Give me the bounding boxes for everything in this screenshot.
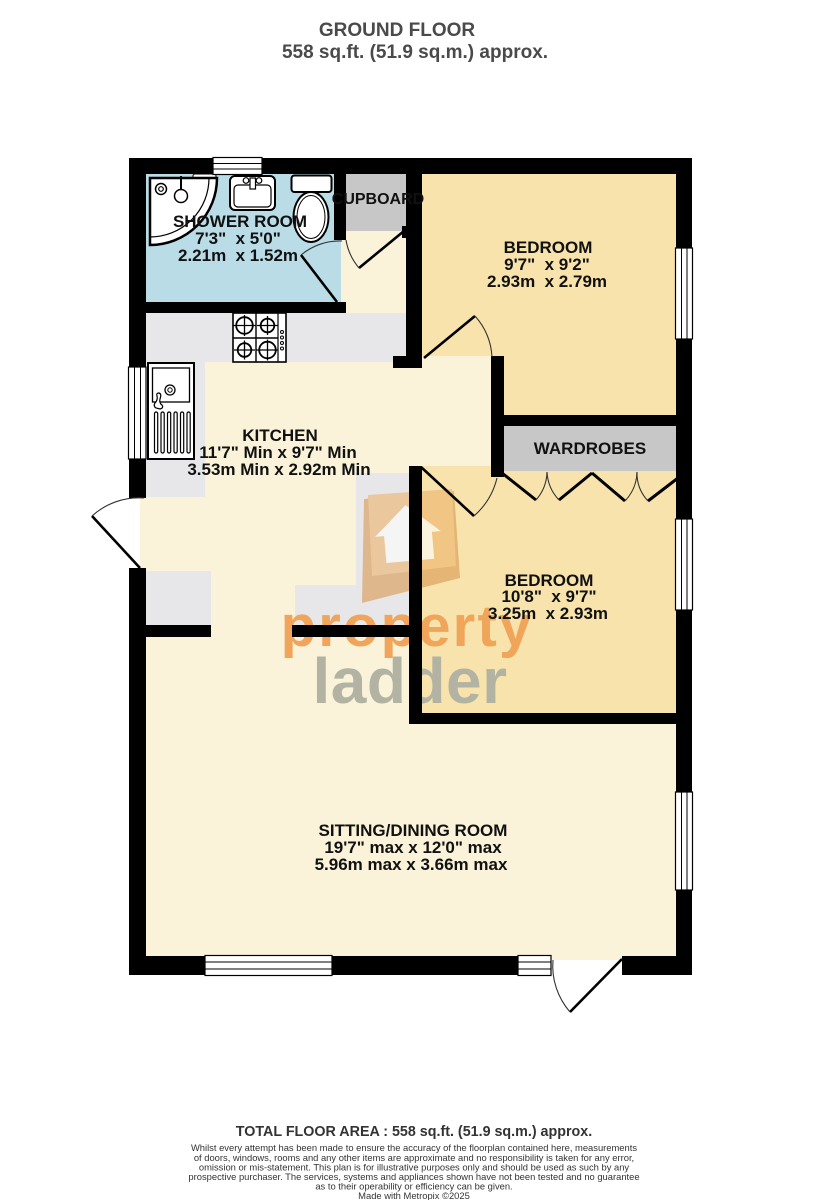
svg-text:2.21m x 1.52m: 2.21m x 1.52m [178,246,298,265]
svg-text:5.96m max x 3.66m max: 5.96m max x 3.66m max [315,855,508,874]
svg-text:3.25m x 2.93m: 3.25m x 2.93m [488,604,608,623]
svg-text:CUPBOARD: CUPBOARD [332,191,424,208]
svg-text:WARDROBES: WARDROBES [534,439,646,458]
svg-text:GROUND FLOOR: GROUND FLOOR [319,20,475,41]
svg-text:3.53m Min x 2.92m Min: 3.53m Min x 2.92m Min [187,460,370,479]
svg-text:558 sq.ft. (51.9 sq.m.) approx: 558 sq.ft. (51.9 sq.m.) approx. [282,42,548,63]
svg-text:TOTAL FLOOR AREA : 558 sq.ft.: TOTAL FLOOR AREA : 558 sq.ft. (51.9 sq.m… [236,1124,592,1140]
svg-text:2.93m x 2.79m: 2.93m x 2.79m [487,272,607,291]
svg-text:Made with Metropix ©2025: Made with Metropix ©2025 [358,1190,470,1200]
